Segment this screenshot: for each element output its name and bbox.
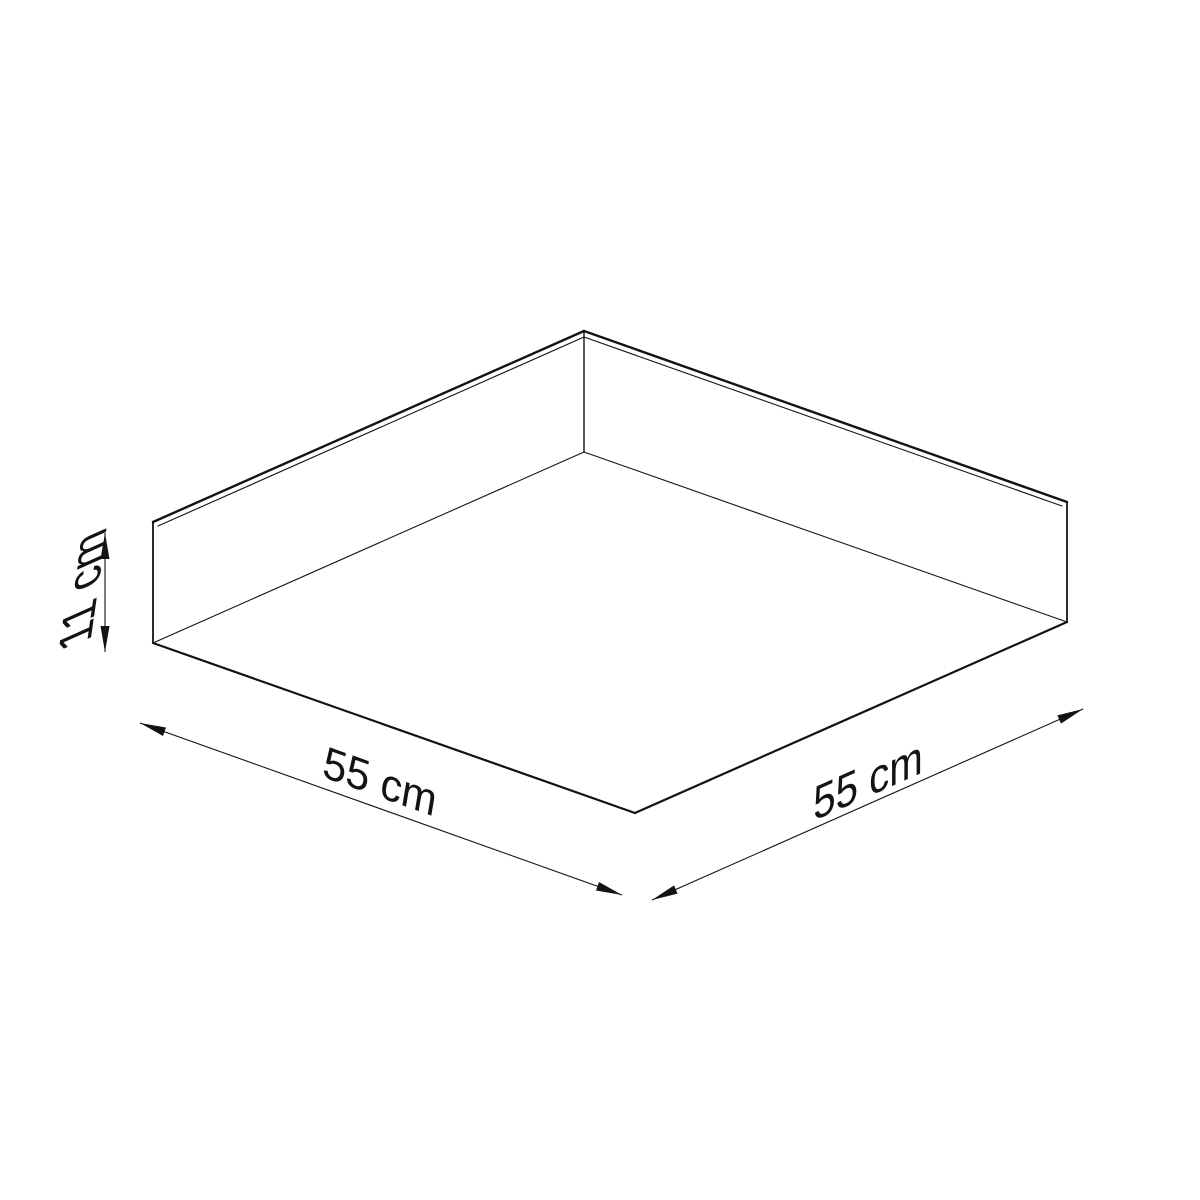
arrow-left-icon [652,885,678,900]
width-left-dimension-label: 55 cm [319,738,440,827]
top-rim-left-outer-edge [153,331,584,522]
arrow-left-icon [140,723,166,736]
top-rim-right-inner-edge [584,337,1062,506]
bottom-face-far-left-edge [153,452,584,643]
width-right-dimension-label: 55 cm [813,729,923,832]
width-left-dimension-line [140,723,622,895]
drawing-canvas: 11 cm 55 cm 55 cm [0,0,1200,1200]
dimension-drawing: 11 cm 55 cm 55 cm [0,0,1200,1200]
height-dimension: 11 cm [48,520,117,659]
lamp-outline [153,331,1067,813]
arrow-right-icon [596,882,622,895]
width-left-dimension: 55 cm [140,723,622,895]
top-rim-left-inner-edge [158,337,584,526]
arrow-right-icon [1057,709,1083,724]
top-rim-right-outer-edge [584,331,1067,502]
width-right-dimension: 55 cm [652,709,1083,900]
